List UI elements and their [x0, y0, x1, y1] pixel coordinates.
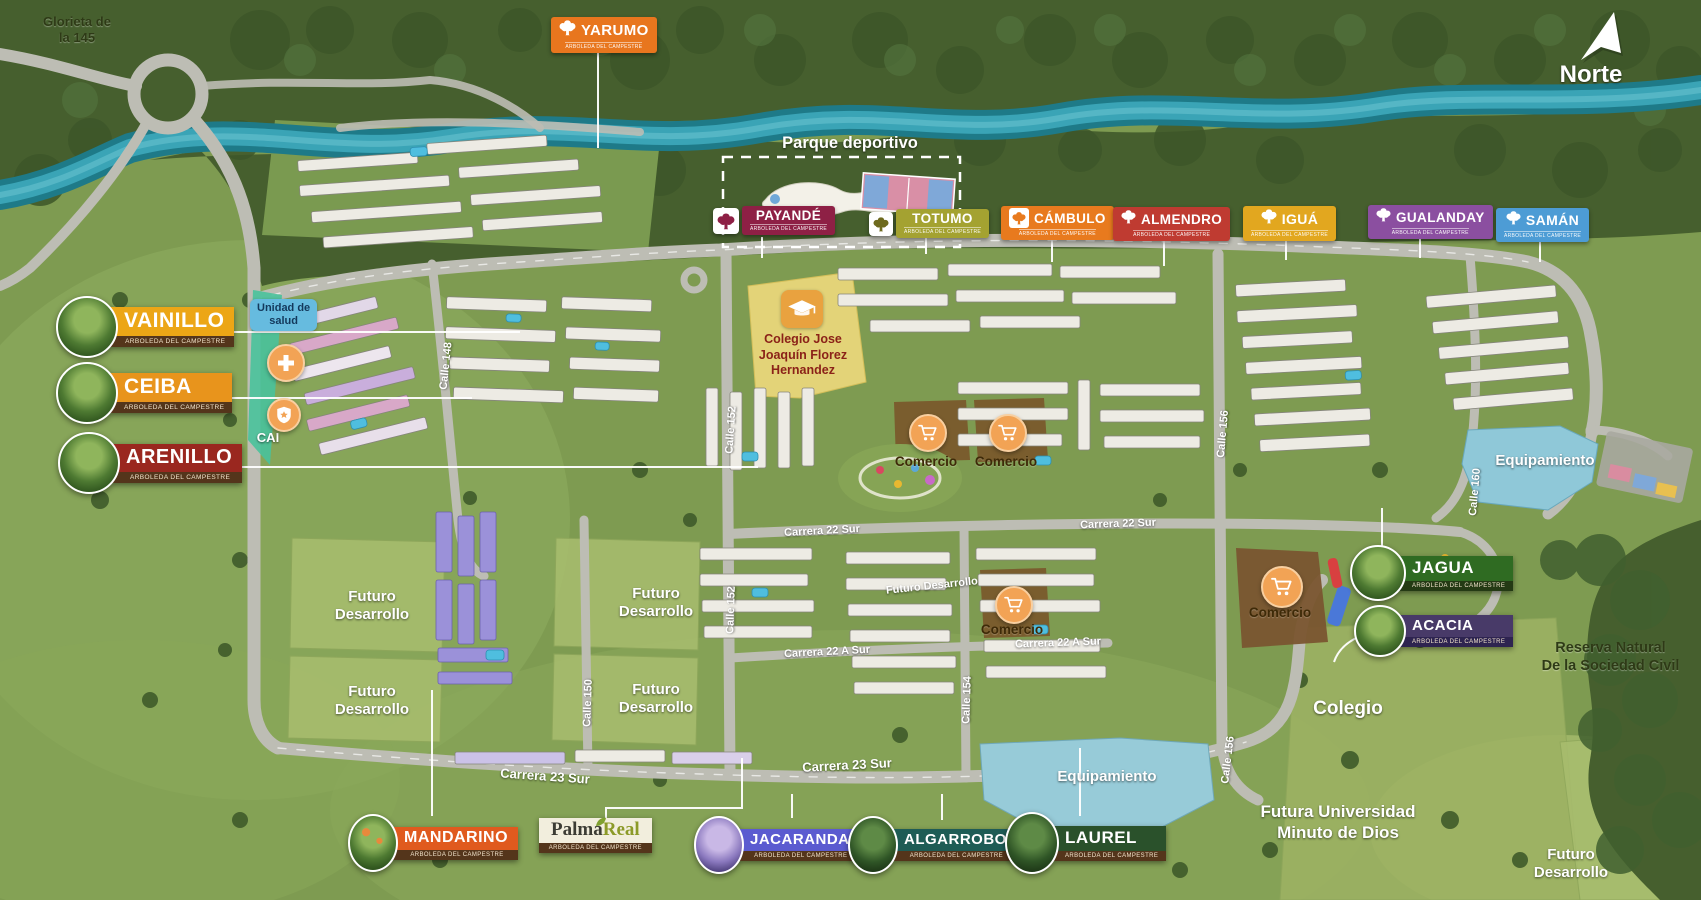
school-cap-icon [781, 290, 823, 328]
project-name: TOTUMO [912, 211, 973, 226]
project-name-part2: Real [603, 819, 640, 841]
project-badge-cambulo[interactable]: CÁMBULO ARBOLEDA DEL CAMPESTRE [1001, 206, 1114, 240]
brand-subtitle: ARBOLEDA DEL CAMPESTRE [106, 336, 234, 347]
project-name: IGUÁ [1282, 211, 1319, 227]
project-badge-algarrobo[interactable]: ALGARROBO ARBOLEDA DEL CAMPESTRE [848, 816, 1017, 874]
cart-icon [989, 414, 1027, 452]
brand-subtitle: ARBOLEDA DEL CAMPESTRE [904, 227, 981, 235]
brand-subtitle: ARBOLEDA DEL CAMPESTRE [1394, 581, 1513, 591]
street-calle-152-s: Calle 152 [724, 586, 738, 634]
brand-subtitle: ARBOLEDA DEL CAMPESTRE [386, 850, 518, 860]
project-name: ACACIA [1394, 615, 1513, 637]
tree-photo [58, 432, 120, 494]
cart-icon [1261, 566, 1303, 608]
health-cross-icon [267, 344, 305, 382]
reserva-natural-label: Reserva NaturalDe la Sociedad Civil [1538, 640, 1683, 675]
project-badge-yarumo[interactable]: YARUMO ARBOLEDA DEL CAMPESTRE [551, 17, 657, 53]
project-badge-payande[interactable]: PAYANDÉ ARBOLEDA DEL CAMPESTRE [713, 206, 835, 235]
project-name: YARUMO [581, 22, 649, 39]
cart-icon [909, 414, 947, 452]
project-name: JACARANDA [732, 829, 860, 851]
cart-icon [995, 586, 1033, 624]
futuro-desarrollo-label-5: FuturoDesarrollo [1526, 846, 1616, 883]
project-name: GUALANDAY [1396, 210, 1485, 225]
tree-photo [348, 814, 398, 872]
futuro-desarrollo-label-4: FuturoDesarrollo [611, 681, 701, 718]
brand-subtitle: ARBOLEDA DEL CAMPESTRE [1392, 228, 1469, 236]
north-label: Norte [1549, 60, 1633, 89]
equipamiento-label-right: Equipamiento [1490, 452, 1600, 470]
tree-photo [1350, 545, 1406, 601]
brand-subtitle: ARBOLEDA DEL CAMPESTRE [108, 472, 242, 483]
tree-photo [56, 296, 118, 358]
glorieta-label: Glorieta dela 145 [38, 14, 116, 46]
tree-icon [869, 212, 893, 236]
brand-subtitle: ARBOLEDA DEL CAMPESTRE [106, 402, 232, 413]
project-badge-arenillo[interactable]: ARENILLO ARBOLEDA DEL CAMPESTRE [58, 432, 242, 494]
brand-subtitle: ARBOLEDA DEL CAMPESTRE [565, 42, 642, 50]
tree-icon [1376, 207, 1391, 227]
tree-icon [1506, 210, 1521, 230]
street-calle-150: Calle 150 [581, 679, 595, 727]
project-name: VAINILLO [106, 307, 234, 336]
project-name: SAMÁN [1526, 212, 1579, 228]
brand-subtitle: ARBOLEDA DEL CAMPESTRE [1504, 231, 1581, 239]
project-name: PAYANDÉ [756, 208, 821, 223]
leaf-icon [595, 814, 607, 832]
cai-label: CAI [248, 430, 288, 446]
unidad-salud-label: Unidad desalud [250, 299, 317, 331]
brand-subtitle: ARBOLEDA DEL CAMPESTRE [1394, 637, 1513, 647]
brand-subtitle: ARBOLEDA DEL CAMPESTRE [1047, 851, 1166, 861]
sports-park-title: Parque deportivo [779, 133, 921, 153]
tree-photo [694, 816, 744, 874]
futuro-desarrollo-label-1: FuturoDesarrollo [327, 588, 417, 625]
street-calle-154: Calle 154 [960, 676, 974, 724]
project-badge-almendro[interactable]: ALMENDRO ARBOLEDA DEL CAMPESTRE [1113, 207, 1230, 241]
comercio-label-1: Comercio [891, 454, 961, 469]
project-name: ALGARROBO [886, 829, 1017, 851]
tree-icon [559, 19, 576, 41]
project-badge-mandarino[interactable]: MANDARINO ARBOLEDA DEL CAMPESTRE [348, 814, 518, 872]
futura-universidad-label: Futura UniversidadMinuto de Dios [1258, 802, 1418, 843]
tree-photo [848, 816, 898, 874]
comercio-label-2: Comercio [971, 454, 1041, 469]
parking-courts [1596, 431, 1694, 504]
brand-subtitle: ARBOLEDA DEL CAMPESTRE [1251, 230, 1328, 238]
comercio-label-4: Comercio [1245, 605, 1315, 620]
project-badge-acacia[interactable]: ACACIA ARBOLEDA DEL CAMPESTRE [1354, 605, 1513, 657]
project-badge-gualanday[interactable]: GUALANDAY ARBOLEDA DEL CAMPESTRE [1368, 205, 1493, 239]
palmareal-logo: Palma Real [539, 818, 652, 843]
colegio-area-label: Colegio [1300, 697, 1396, 720]
project-badge-laurel[interactable]: LAUREL ARBOLEDA DEL CAMPESTRE [1005, 812, 1166, 874]
project-badge-jagua[interactable]: JAGUA ARBOLEDA DEL CAMPESTRE [1350, 545, 1513, 601]
tree-photo [56, 362, 118, 424]
project-badge-igua[interactable]: IGUÁ ARBOLEDA DEL CAMPESTRE [1243, 206, 1336, 241]
project-badge-jacaranda[interactable]: JACARANDA ARBOLEDA DEL CAMPESTRE [694, 816, 860, 874]
brand-subtitle: ARBOLEDA DEL CAMPESTRE [1133, 230, 1210, 238]
masterplan-map: Glorieta dela 145 Norte Parque deportivo… [0, 0, 1701, 900]
project-name: ARENILLO [108, 444, 242, 472]
project-name: MANDARINO [386, 827, 518, 850]
tree-icon [1009, 208, 1029, 228]
tree-photo [1354, 605, 1406, 657]
project-name: LAUREL [1047, 826, 1166, 851]
futuro-desarrollo-label-2: FuturoDesarrollo [327, 683, 417, 720]
project-badge-palmareal[interactable]: Palma Real ARBOLEDA DEL CAMPESTRE [539, 818, 652, 853]
project-name: ALMENDRO [1141, 212, 1222, 227]
tree-icon [713, 208, 739, 234]
brand-subtitle: ARBOLEDA DEL CAMPESTRE [732, 851, 860, 861]
project-badge-vainillo[interactable]: VAINILLO ARBOLEDA DEL CAMPESTRE [56, 296, 234, 358]
project-name: CEIBA [106, 373, 232, 402]
project-badge-saman[interactable]: SAMÁN ARBOLEDA DEL CAMPESTRE [1496, 208, 1589, 242]
project-badge-totumo[interactable]: TOTUMO ARBOLEDA DEL CAMPESTRE [869, 209, 989, 238]
tree-photo [1005, 812, 1059, 874]
comercio-label-3: Comercio [977, 622, 1047, 637]
colegio-jose-label: Colegio Jose Joaquín Florez Hernandez [748, 332, 858, 379]
brand-subtitle: ARBOLEDA DEL CAMPESTRE [750, 224, 827, 232]
project-name: JAGUA [1394, 556, 1513, 581]
project-name: CÁMBULO [1034, 211, 1106, 226]
brand-subtitle: ARBOLEDA DEL CAMPESTRE [539, 843, 652, 853]
equipamiento-label-bottom: Equipamiento [1052, 768, 1162, 786]
tree-icon [1121, 209, 1136, 229]
cai-shield-icon [267, 398, 301, 432]
brand-subtitle: ARBOLEDA DEL CAMPESTRE [1019, 229, 1096, 237]
project-badge-ceiba[interactable]: CEIBA ARBOLEDA DEL CAMPESTRE [56, 362, 232, 424]
futuro-desarrollo-label-3: FuturoDesarrollo [611, 585, 701, 622]
brand-subtitle: ARBOLEDA DEL CAMPESTRE [886, 851, 1017, 861]
tree-icon [1261, 208, 1277, 229]
